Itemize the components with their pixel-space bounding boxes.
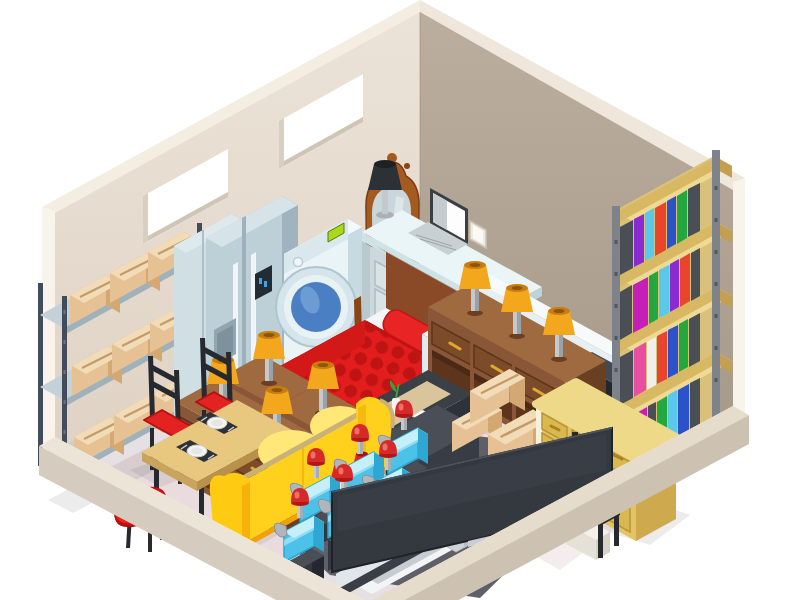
book-spine bbox=[678, 384, 689, 438]
room-canvas: Isometric cutaway illustration of a stor… bbox=[0, 0, 800, 600]
book-spine bbox=[620, 220, 633, 275]
window-jamb bbox=[279, 118, 284, 169]
book-spine bbox=[620, 350, 633, 405]
book-spine bbox=[633, 277, 648, 333]
washer-knob bbox=[294, 258, 303, 267]
book-spine bbox=[677, 190, 687, 244]
book-spine bbox=[667, 196, 676, 249]
desk-left-sliver bbox=[362, 241, 370, 328]
book-spine bbox=[679, 319, 688, 372]
book-spine bbox=[649, 271, 658, 324]
chair-leg bbox=[598, 524, 603, 558]
chair-leg bbox=[614, 513, 619, 546]
book-spine bbox=[688, 183, 700, 237]
rack-back-post bbox=[38, 283, 43, 466]
desk-lamp-stem bbox=[382, 190, 388, 214]
book-spine bbox=[691, 248, 700, 301]
book-spine bbox=[634, 214, 644, 267]
book-spine bbox=[634, 342, 646, 397]
book-spine bbox=[647, 337, 656, 390]
book-spine bbox=[690, 378, 700, 431]
book-spine bbox=[670, 259, 679, 312]
isometric-room-illustration: Isometric cutaway illustration of a stor… bbox=[0, 0, 800, 600]
window-jamb bbox=[143, 193, 148, 244]
book-spine bbox=[689, 313, 700, 367]
book-spine bbox=[645, 208, 654, 261]
mirror-scroll-right bbox=[404, 163, 410, 169]
book-spine bbox=[680, 253, 690, 307]
book-spine bbox=[659, 265, 669, 318]
fridge-display-digit bbox=[264, 281, 267, 287]
right-wall-outer-edge bbox=[733, 178, 745, 440]
desk-lamp-shade-top bbox=[374, 160, 396, 168]
book-spine bbox=[655, 202, 666, 256]
left-wall-outer-edge bbox=[42, 207, 55, 470]
book-spine bbox=[620, 285, 632, 340]
book-spine bbox=[657, 331, 667, 384]
fridge-display-digit bbox=[259, 278, 262, 284]
tulip-flower bbox=[395, 372, 404, 384]
bookshelf-post-right bbox=[712, 150, 720, 424]
book-spine bbox=[668, 325, 678, 378]
